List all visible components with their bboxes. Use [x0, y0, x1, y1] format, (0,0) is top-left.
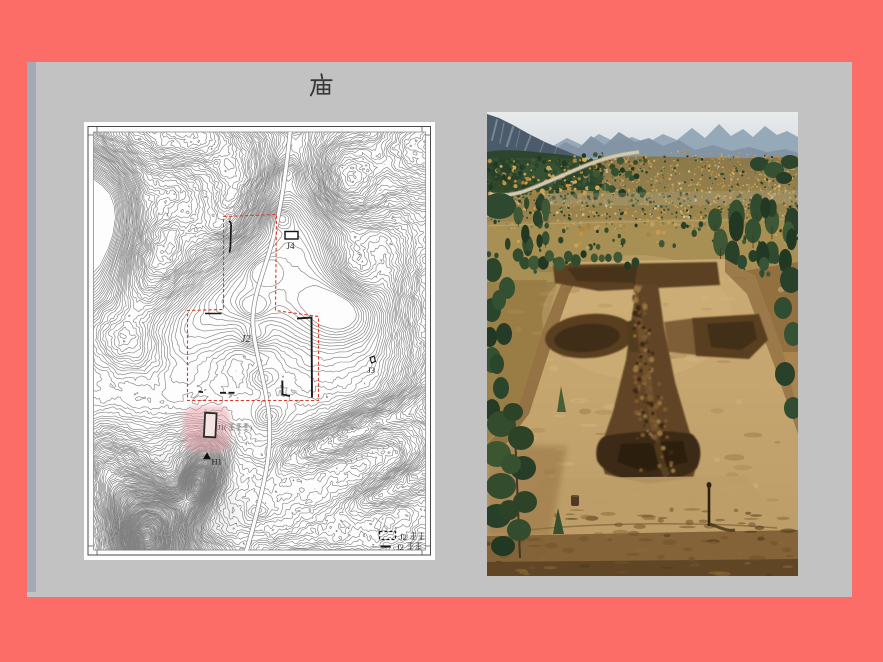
- svg-text:J2: J2: [397, 542, 405, 552]
- svg-text:J2: J2: [241, 334, 250, 345]
- svg-text:J4: J4: [287, 241, 296, 251]
- svg-text:J3: J3: [368, 365, 376, 375]
- svg-text:J2: J2: [400, 532, 408, 542]
- svg-text:H1: H1: [212, 457, 222, 467]
- svg-text:J1(: J1(: [218, 423, 228, 432]
